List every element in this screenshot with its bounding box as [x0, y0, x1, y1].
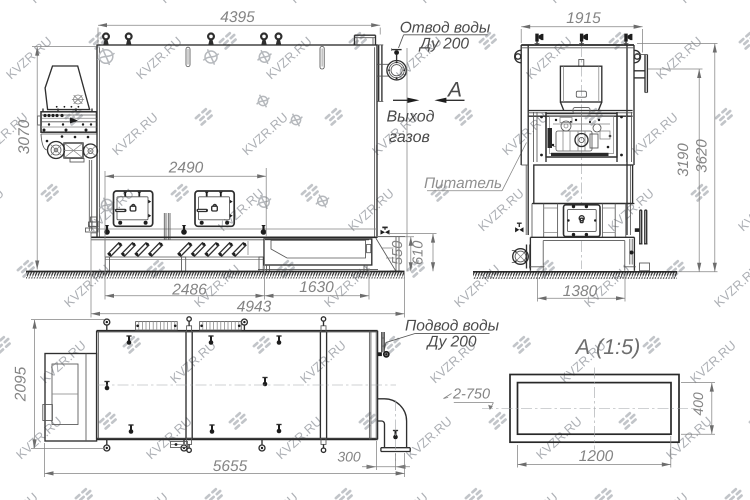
svg-text:1200: 1200 — [579, 448, 614, 465]
svg-text:А (1:5): А (1:5) — [574, 335, 641, 359]
svg-text:610: 610 — [410, 241, 426, 265]
svg-text:Ду 200: Ду 200 — [425, 334, 476, 351]
svg-text:3620: 3620 — [694, 139, 711, 173]
svg-text:2095: 2095 — [13, 366, 30, 402]
svg-text:А: А — [446, 79, 462, 102]
svg-text:4395: 4395 — [220, 9, 255, 26]
svg-text:Питатель: Питатель — [424, 175, 502, 192]
svg-text:2490: 2490 — [168, 160, 204, 177]
svg-text:Подвод воды: Подвод воды — [405, 318, 500, 335]
svg-text:1380: 1380 — [563, 283, 598, 300]
svg-text:1915: 1915 — [566, 10, 601, 27]
svg-text:5655: 5655 — [213, 458, 248, 475]
svg-text:3070: 3070 — [16, 119, 33, 154]
svg-text:2-750: 2-750 — [452, 387, 490, 403]
svg-text:газов: газов — [389, 129, 430, 146]
svg-text:550: 550 — [390, 241, 406, 265]
svg-text:Отвод воды: Отвод воды — [400, 20, 491, 37]
svg-text:Выход: Выход — [386, 109, 434, 126]
svg-text:1630: 1630 — [299, 279, 334, 296]
svg-text:3190: 3190 — [675, 143, 692, 177]
svg-text:Ду 200: Ду 200 — [418, 36, 469, 53]
svg-text:400: 400 — [690, 392, 706, 416]
svg-text:4943: 4943 — [237, 299, 272, 316]
svg-text:300: 300 — [337, 449, 361, 465]
